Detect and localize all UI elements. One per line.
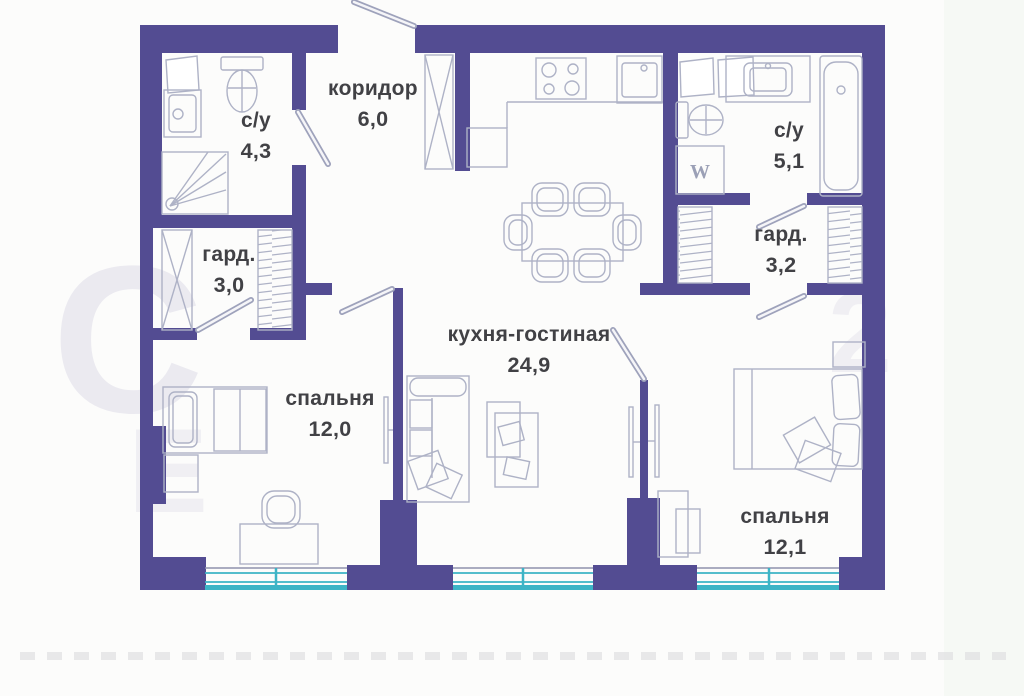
dresser-symbol: [658, 491, 700, 557]
wall-left-pilaster: [140, 426, 166, 504]
room-label-su2: с/у 5,1: [774, 118, 805, 175]
room-area: 3,0: [214, 272, 245, 299]
wall-pier-a: [347, 565, 453, 590]
stove-symbol: [536, 58, 586, 99]
wall-pier-b: [593, 565, 697, 590]
wall-left-lower: [140, 228, 153, 565]
kitchen-sink-symbol: [617, 56, 662, 103]
tv-symbol: [384, 397, 393, 463]
wall-corner-br: [839, 557, 885, 590]
shelf-rack-symbol: [258, 230, 292, 330]
room-area: 24,9: [507, 352, 550, 379]
tv-symbol: [629, 407, 640, 477]
room-name: кухня-гостиная: [448, 322, 611, 348]
room-label-bedroom1: спальня 12,0: [285, 386, 374, 443]
dining-table-symbol: [504, 183, 641, 282]
sofa-symbol: [407, 376, 469, 502]
room-area: 12,0: [308, 416, 351, 443]
room-label-gard1: гард. 3,0: [202, 242, 255, 299]
wall-top-right: [415, 25, 885, 53]
wall-top-left: [140, 25, 338, 53]
coffee-table-symbol: [487, 402, 538, 487]
bedroom2-door-symbol: [613, 330, 644, 379]
room-name: гард.: [202, 242, 255, 268]
room-area: 6,0: [358, 106, 389, 133]
bedroom1-door-symbol: [342, 289, 392, 312]
desk-chair-symbol: [240, 491, 318, 564]
shaft-flap-icon: [680, 58, 714, 97]
room-area: 4,3: [241, 138, 272, 165]
toilet-symbol: [221, 57, 263, 112]
washing-machine-letter: W: [690, 161, 710, 183]
kitchen-counter-symbol: [467, 102, 663, 167]
room-label-living: кухня-гостиная 24,9: [448, 322, 611, 379]
wall-right: [862, 25, 885, 590]
wall-left-upper: [140, 25, 162, 228]
room-label-su1: с/у 4,3: [241, 108, 272, 165]
room-name: спальня: [285, 386, 374, 412]
bathtub-symbol: [820, 56, 862, 196]
room-name: спальня: [740, 504, 829, 530]
washing-machine-symbol: [164, 90, 201, 137]
window-symbol: [697, 568, 839, 590]
wardrobe2-door-symbol: [759, 296, 804, 317]
window-symbol: [453, 568, 593, 590]
wall-corner-bl: [140, 557, 206, 590]
room-area: 5,1: [774, 148, 805, 175]
windows: [205, 568, 839, 590]
entrance-door-symbol: [354, 2, 414, 26]
room-name: с/у: [774, 118, 804, 144]
room-name: коридор: [328, 76, 418, 102]
floor-plan-page: С Е 2: [0, 0, 1024, 696]
room-name: с/у: [241, 108, 271, 134]
room-area: 12,1: [763, 534, 806, 561]
room-area: 3,2: [766, 252, 797, 279]
shelf-rack-symbol: [828, 207, 862, 283]
shelf-rack-symbol: [678, 207, 712, 283]
tv-symbol: [648, 405, 659, 477]
shaft-flap-icon: [166, 56, 199, 93]
toilet-symbol: [676, 102, 723, 138]
wardrobe1-door-symbol: [198, 300, 251, 330]
window-symbol: [205, 568, 347, 590]
hall-cabinet-symbol: [425, 55, 453, 169]
room-label-gard2: гард. 3,2: [754, 222, 807, 279]
room-label-koridor: коридор 6,0: [328, 76, 418, 133]
shower-symbol: [162, 152, 228, 214]
room-label-bedroom2: спальня 12,1: [740, 504, 829, 561]
room-name: гард.: [754, 222, 807, 248]
bathroom1-door-symbol: [298, 112, 328, 164]
